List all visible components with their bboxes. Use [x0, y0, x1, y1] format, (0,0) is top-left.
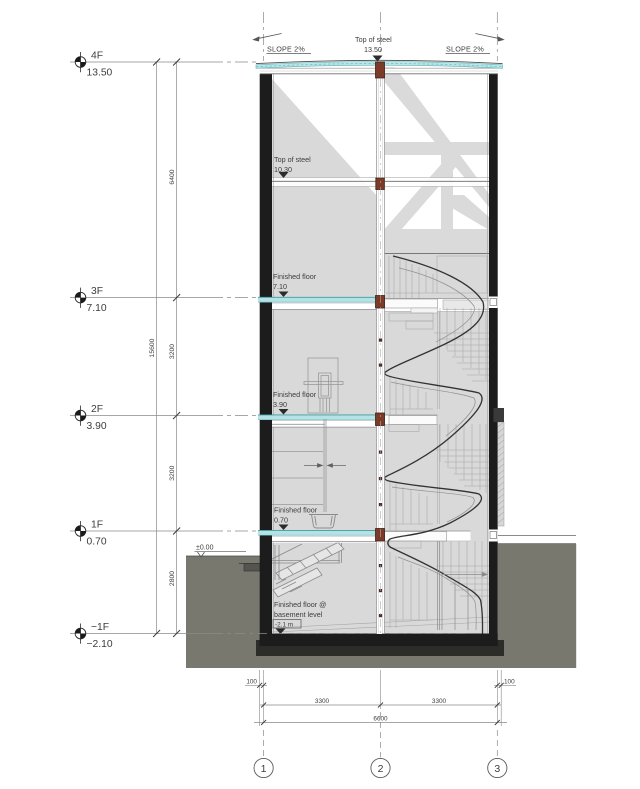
svg-text:0.70: 0.70 [274, 516, 288, 525]
svg-text:3.90: 3.90 [87, 421, 107, 432]
svg-text:Finished floor @: Finished floor @ [274, 600, 326, 609]
svg-text:Top of steel: Top of steel [355, 35, 392, 44]
svg-text:1: 1 [261, 763, 267, 775]
svg-text:100: 100 [504, 679, 515, 686]
svg-text:3200: 3200 [169, 465, 176, 480]
svg-text:3300: 3300 [432, 698, 447, 705]
svg-text:3F: 3F [91, 286, 103, 297]
svg-text:±0.00: ±0.00 [196, 545, 214, 552]
svg-text:Finished floor: Finished floor [273, 390, 317, 399]
svg-text:2F: 2F [91, 404, 103, 415]
svg-text:7.10: 7.10 [87, 303, 107, 314]
svg-text:-2.1 m: -2.1 m [275, 622, 293, 629]
svg-text:4F: 4F [91, 51, 103, 62]
svg-text:Finished floor: Finished floor [273, 272, 317, 281]
svg-text:3200: 3200 [169, 344, 176, 359]
svg-text:−1F: −1F [91, 622, 109, 633]
svg-text:Finished floor: Finished floor [274, 506, 318, 515]
svg-text:SLOPE 2%: SLOPE 2% [446, 45, 484, 54]
svg-text:15600: 15600 [149, 338, 156, 357]
svg-text:2800: 2800 [169, 571, 176, 586]
svg-text:2: 2 [378, 763, 384, 775]
svg-text:SLOPE 2%: SLOPE 2% [267, 45, 305, 54]
svg-text:13.50: 13.50 [87, 68, 113, 79]
svg-text:3.90: 3.90 [273, 400, 287, 409]
svg-text:1F: 1F [91, 520, 103, 531]
svg-text:13.50: 13.50 [364, 45, 382, 54]
svg-text:basement level: basement level [274, 610, 323, 619]
svg-text:−2.10: −2.10 [87, 639, 113, 650]
svg-text:3: 3 [494, 763, 500, 775]
svg-text:Top of steel: Top of steel [274, 155, 311, 164]
svg-text:7.10: 7.10 [273, 282, 287, 291]
svg-text:6400: 6400 [169, 169, 176, 184]
svg-text:100: 100 [246, 679, 257, 686]
svg-text:3300: 3300 [315, 698, 330, 705]
svg-text:0.70: 0.70 [87, 537, 107, 548]
